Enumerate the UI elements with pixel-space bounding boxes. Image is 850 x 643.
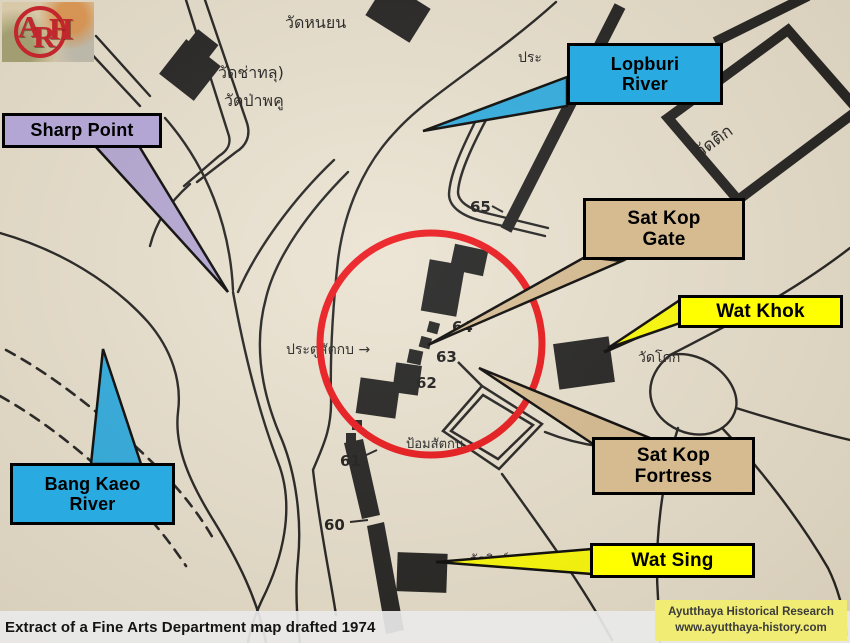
gate-number-62: 62: [416, 374, 437, 392]
gate-number-63: 63: [436, 348, 457, 366]
tail-wat-khok: [608, 300, 680, 348]
wat-khok-block: [553, 336, 615, 389]
map-slide: วัดหนยน วัดช่าทลุ) วัดป่าพคู ประ วัดติก …: [0, 0, 850, 643]
callout-sat-kop-fortress: Sat Kop Fortress: [592, 437, 755, 495]
temple-topcenter-block: [365, 0, 430, 43]
logo-letter-h: H: [49, 11, 73, 47]
callout-bang-kaeo-river: Bang Kaeo River: [10, 463, 175, 525]
credit-box: Ayutthaya Historical Research www.ayutth…: [655, 600, 847, 641]
road-junction-loop: [650, 354, 736, 435]
label-pratu-sat-kop: ประตูสัตกบ →: [286, 342, 370, 358]
callout-tails: [91, 77, 690, 574]
wall-bastion-a2: [421, 259, 465, 316]
wall-northeast: [506, 6, 620, 230]
tail-lopburi-river: [423, 77, 567, 131]
label-wat-papaku: วัดป่าพคู: [224, 91, 284, 111]
callout-sat-kop-gate: Sat Kop Gate: [583, 198, 745, 260]
label-pratu-fragment: ประ: [518, 50, 542, 66]
fortress-link-line: [458, 362, 482, 386]
wall-bastion-b2: [356, 377, 401, 418]
sharp-point-east-edge: [238, 160, 334, 292]
credit-url: www.ayutthaya-history.com: [675, 621, 826, 637]
wat-sing-block: [396, 552, 447, 593]
ayutthaya-historical-research-logo: A R H: [2, 2, 94, 62]
gate-number-60: 60: [324, 516, 345, 534]
credit-org: Ayutthaya Historical Research: [668, 605, 834, 621]
callout-wat-sing: Wat Sing: [590, 543, 755, 578]
tail-bang-kaeo-river: [91, 349, 141, 464]
map-source-caption: Extract of a Fine Arts Department map dr…: [0, 619, 375, 636]
wall-dash-1: [427, 321, 440, 334]
label-wat-nayen: วัดหนยน: [285, 13, 346, 32]
wall-block-gate: [407, 349, 424, 366]
gate-number-65: 65: [470, 198, 491, 216]
callout-sharp-point: Sharp Point: [2, 113, 162, 148]
label-wat-khok-thai: วัดโคก: [638, 349, 680, 366]
gate-number-61: 61: [340, 452, 361, 470]
road-right-2: [736, 408, 850, 440]
callout-wat-khok: Wat Khok: [678, 295, 843, 328]
tail-sharp-point: [95, 146, 228, 292]
tail-wat-sing: [436, 549, 592, 574]
label-wat-tik: วัดติก: [691, 121, 737, 162]
callout-lopburi-river: Lopburi River: [567, 43, 723, 105]
label-wat-chathalu: วัดช่าทลุ): [218, 63, 284, 83]
